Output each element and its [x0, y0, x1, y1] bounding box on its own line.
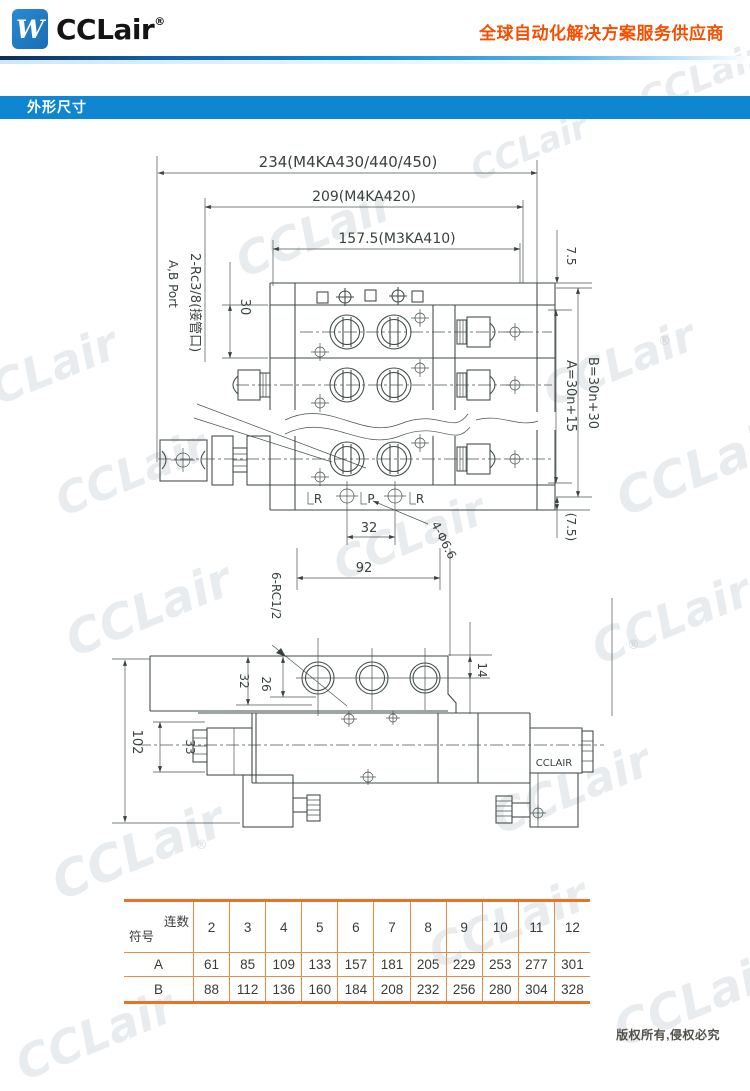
dim-width-overall: 234(M4KA430/440/450)	[259, 153, 438, 171]
table-cell: 256	[446, 977, 482, 1001]
table-cell: 181	[373, 953, 409, 977]
dimension-drawing: 234(M4KA430/440/450) 209(M4KA420) 157.5(…	[0, 0, 750, 1054]
table-cell: 88	[193, 977, 229, 1001]
dim-top-offset: 7.5	[564, 246, 578, 265]
port-label-r-right: R	[416, 492, 424, 506]
port-label-r-left: R	[314, 492, 322, 506]
watermark: CCLair	[536, 310, 703, 417]
watermark: CCLair	[58, 552, 240, 669]
registered-watermark: ®	[627, 638, 640, 653]
table-cell: 253	[482, 953, 518, 977]
table-cell: 133	[301, 953, 337, 977]
corner-label-top: 连数	[164, 911, 189, 930]
label-mount-holes: 4-Φ6.6	[428, 519, 459, 561]
brand-name: CCLair®	[56, 13, 165, 46]
dim-26: 26	[259, 676, 273, 691]
copyright-notice: 版权所有,侵权必究	[616, 1026, 720, 1043]
column-header: 8	[410, 902, 446, 953]
row-label: A	[124, 953, 193, 977]
section-title: 外形尺寸	[27, 99, 87, 115]
watermark: CCLair	[608, 406, 750, 528]
table-cell: 208	[373, 977, 409, 1001]
column-header: 11	[518, 902, 554, 953]
watermark: CCLair	[484, 733, 658, 845]
column-header: 7	[373, 902, 409, 953]
dim-bottom-offset: (7.5)	[564, 513, 578, 541]
dimension-table: 连数 符号 2 3 4 5 6 7 8 9 10 11 12 A 61 85 1…	[124, 899, 590, 1004]
registered-watermark: ®	[658, 334, 671, 349]
table-cell: 280	[482, 977, 518, 1001]
row-label: B	[124, 977, 193, 1001]
label-side-ports-en: A,B Port	[166, 260, 180, 308]
registered-watermark: ®	[195, 838, 208, 853]
table-cell: 157	[337, 953, 373, 977]
dim-station-pitch: 30	[237, 299, 252, 316]
table-corner-cell: 连数 符号	[124, 902, 193, 953]
column-header: 6	[337, 902, 373, 953]
table-cell: 184	[337, 977, 373, 1001]
table-cell: 301	[554, 953, 590, 977]
watermark: CCLair	[0, 316, 125, 428]
dim-14: 14	[475, 662, 489, 677]
brand-logo-icon: W	[12, 9, 48, 49]
top-view: 234(M4KA430/440/450) 209(M4KA420) 157.5(…	[157, 153, 600, 590]
corner-label-bottom: 符号	[129, 926, 154, 945]
table-cell: 229	[446, 953, 482, 977]
dim-mount-spacing: 92	[356, 561, 373, 576]
company-slogan: 全球自动化解决方案服务供应商	[479, 19, 724, 44]
label-side-ports: 2-Rc3/8(接管口)	[187, 253, 203, 352]
dim-a-formula: A=30n+15	[563, 360, 578, 432]
port-label-p: P	[367, 492, 374, 506]
table-cell: 109	[265, 953, 301, 977]
column-header: 10	[482, 902, 518, 953]
watermark: CCLair	[584, 563, 750, 675]
watermark: CCLair	[326, 484, 493, 591]
table-cell: 304	[518, 977, 554, 1001]
table-cell: 232	[410, 977, 446, 1001]
watermark: CCLair	[48, 420, 215, 527]
registered-mark: ®	[154, 15, 165, 28]
page-header: W CCLair® 全球自动化解决方案服务供应商	[0, 0, 750, 96]
column-header: 9	[446, 902, 482, 953]
table-cell: 328	[554, 977, 590, 1001]
column-header: 5	[301, 902, 337, 953]
dim-port-spacing: 32	[361, 521, 378, 536]
dim-b-formula: B=30n+30	[585, 357, 600, 429]
table-cell: 277	[518, 953, 554, 977]
coil-label: CCLAIR	[536, 758, 573, 769]
front-view: 6-RC1/2 14 CCLAIR	[112, 548, 612, 827]
dim-height: 102	[129, 730, 144, 755]
column-header: 12	[554, 902, 590, 953]
dim-width-inner: 157.5(M3KA410)	[338, 231, 455, 247]
dim-32-front: 32	[237, 673, 251, 688]
column-header: 4	[265, 902, 301, 953]
section-title-bar: 外形尺寸	[0, 96, 750, 119]
watermark: CCLair	[44, 790, 233, 912]
table-cell: 85	[229, 953, 265, 977]
watermark: CCLair	[228, 176, 402, 288]
table-cell: 112	[229, 977, 265, 1001]
table-cell: 205	[410, 953, 446, 977]
table-cell: 61	[193, 953, 229, 977]
dim-33: 33	[183, 739, 197, 754]
label-bottom-ports: 6-RC1/2	[269, 572, 283, 619]
table-cell: 160	[301, 977, 337, 1001]
header-divider-glow	[0, 60, 750, 64]
logo-glyph: W	[16, 15, 44, 44]
table-cell: 136	[265, 977, 301, 1001]
column-header: 3	[229, 902, 265, 953]
column-header: 2	[193, 902, 229, 953]
dim-width-mid: 209(M4KA420)	[312, 189, 416, 205]
